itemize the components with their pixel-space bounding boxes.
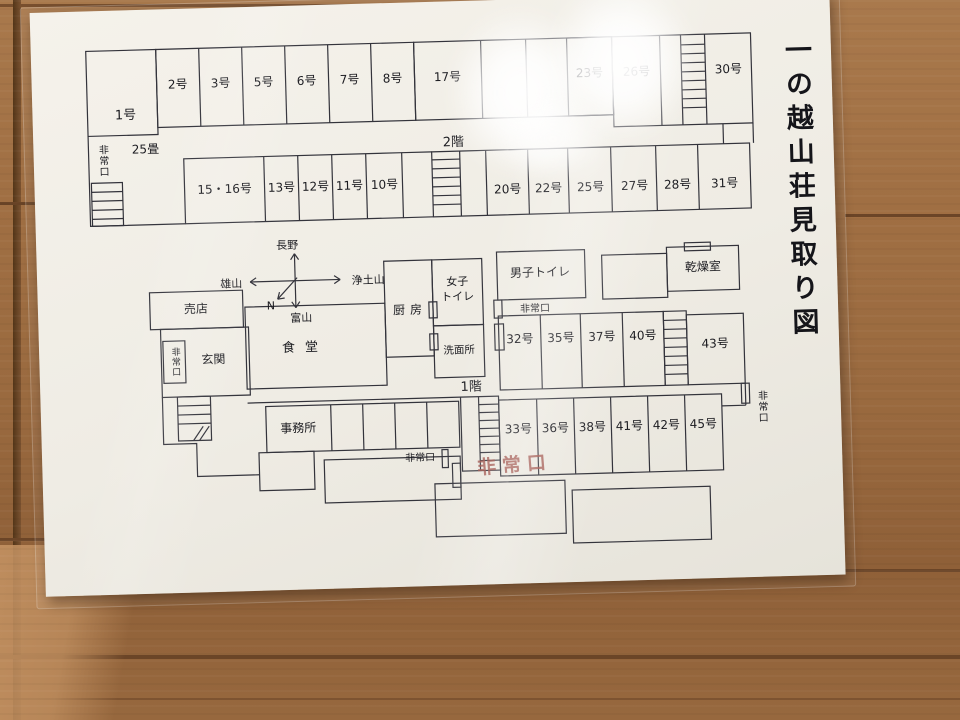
entrance-label: 玄関 <box>201 353 225 367</box>
room-2f-1-size-label: 25畳 <box>132 143 160 157</box>
room-2f-13-label: 13号 <box>268 181 296 195</box>
room-1f-41-label: 41号 <box>616 419 644 433</box>
men-toilet-label: 男子トイレ <box>510 265 570 280</box>
room-1f-33-label: 33号 <box>505 423 533 437</box>
room-2f-12-label: 12号 <box>302 180 330 194</box>
exit-south-label: 非常口 <box>405 452 435 464</box>
room-2f-25-label: 25号 <box>577 180 605 194</box>
compass-toyama-label: 富山 <box>290 312 312 325</box>
shop-label: 売店 <box>184 303 208 317</box>
room-2f-2-label: 2号 <box>168 78 188 92</box>
washroom-label: 洗面所 <box>443 345 475 357</box>
stairs-1f-east <box>663 311 688 386</box>
kitchen-label: 厨房 <box>393 303 427 317</box>
room-2f-8-label: 8号 <box>383 72 403 86</box>
exit-mid-label: 非常口 <box>520 303 550 315</box>
exit-east-label: 非常口 <box>755 390 766 423</box>
room-2f-11-label: 11号 <box>336 179 364 193</box>
office-label: 事務所 <box>280 422 316 436</box>
room-1f-42-label: 42号 <box>653 418 681 432</box>
room-1f-43-label: 43号 <box>701 337 729 351</box>
room-sw-wide-outline <box>324 456 461 503</box>
room-2f-20-label: 20号 <box>494 183 522 197</box>
floorplan-drawing <box>30 0 846 597</box>
compass-jodosan-label: 浄土山 <box>352 274 385 287</box>
porch-right-outline <box>572 486 711 543</box>
wood-wall-photo: 一の越山荘見取り図 1号 25畳 非常口 2号 3号 5号 6号 7号 8号 1… <box>0 0 960 720</box>
room-1f-40-label: 40号 <box>629 329 657 343</box>
room-2f-3-label: 3号 <box>211 77 231 91</box>
stairs-2f-west <box>91 183 123 227</box>
room-2f-7-label: 7号 <box>340 73 360 87</box>
exit-entrance-label: 非常口 <box>169 347 179 377</box>
room-sw-small-outline <box>259 451 315 491</box>
women-toilet-label-line2: トイレ <box>441 291 474 304</box>
door-slot-south-exit <box>442 450 449 468</box>
compass-rose <box>249 252 340 308</box>
floorplan-paper: 一の越山荘見取り図 1号 25畳 非常口 2号 3号 5号 6号 7号 8号 1… <box>30 0 846 597</box>
room-2f-22-label: 22号 <box>535 182 563 196</box>
room-1f-45-label: 45号 <box>690 417 718 431</box>
exit-2f-west-label: 非常口 <box>96 144 107 177</box>
room-2f-5-label: 5号 <box>254 76 274 90</box>
compass-nagano-label: 長野 <box>276 240 298 253</box>
room-1f-32-label: 32号 <box>506 332 534 346</box>
room-1f-37-label: 37号 <box>588 330 616 344</box>
stairs-2f-east <box>432 159 461 205</box>
floor1-label: 1階 <box>460 380 482 395</box>
room-2f-1-label: 1号 <box>115 109 137 124</box>
room-2f-31-label: 31号 <box>711 177 739 191</box>
dining-label: 食堂 <box>282 341 328 357</box>
compass-oyama-label: 雄山 <box>220 278 242 291</box>
room-2f-15-16-label: 15・16号 <box>197 182 252 197</box>
stairs-1f-southwest <box>177 396 211 441</box>
porch-left-outline <box>435 480 566 537</box>
women-toilet-label-line1: 女子 <box>446 276 468 289</box>
room-2f-6-label: 6号 <box>297 74 317 88</box>
drying-room-label: 乾燥室 <box>685 260 721 274</box>
room-1f-35-label: 35号 <box>547 331 575 345</box>
room-1f-36-label: 36号 <box>542 422 570 436</box>
room-2f-28-label: 28号 <box>664 178 692 192</box>
room-2f-10-label: 10号 <box>371 178 399 192</box>
compass-north-label: N <box>267 300 276 312</box>
room-2f-30-label: 30号 <box>715 63 743 77</box>
room-2f-27-label: 27号 <box>621 179 649 193</box>
room-1f-38-label: 38号 <box>579 421 607 435</box>
storage-outline <box>602 253 668 299</box>
